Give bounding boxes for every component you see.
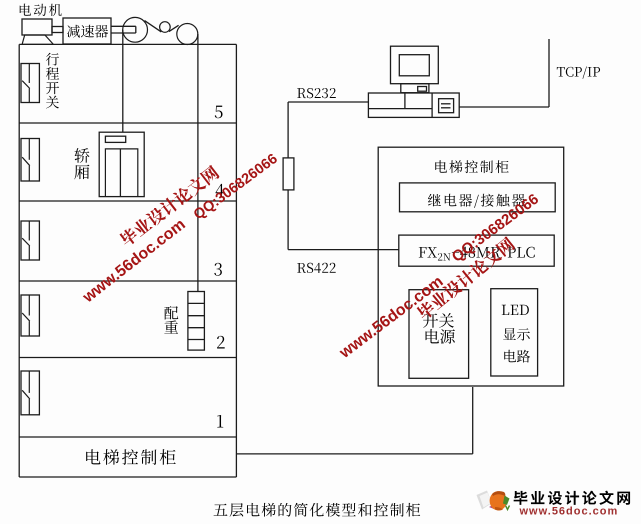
svg-text:www.56doc.com: www.56doc.com [519, 506, 619, 518]
